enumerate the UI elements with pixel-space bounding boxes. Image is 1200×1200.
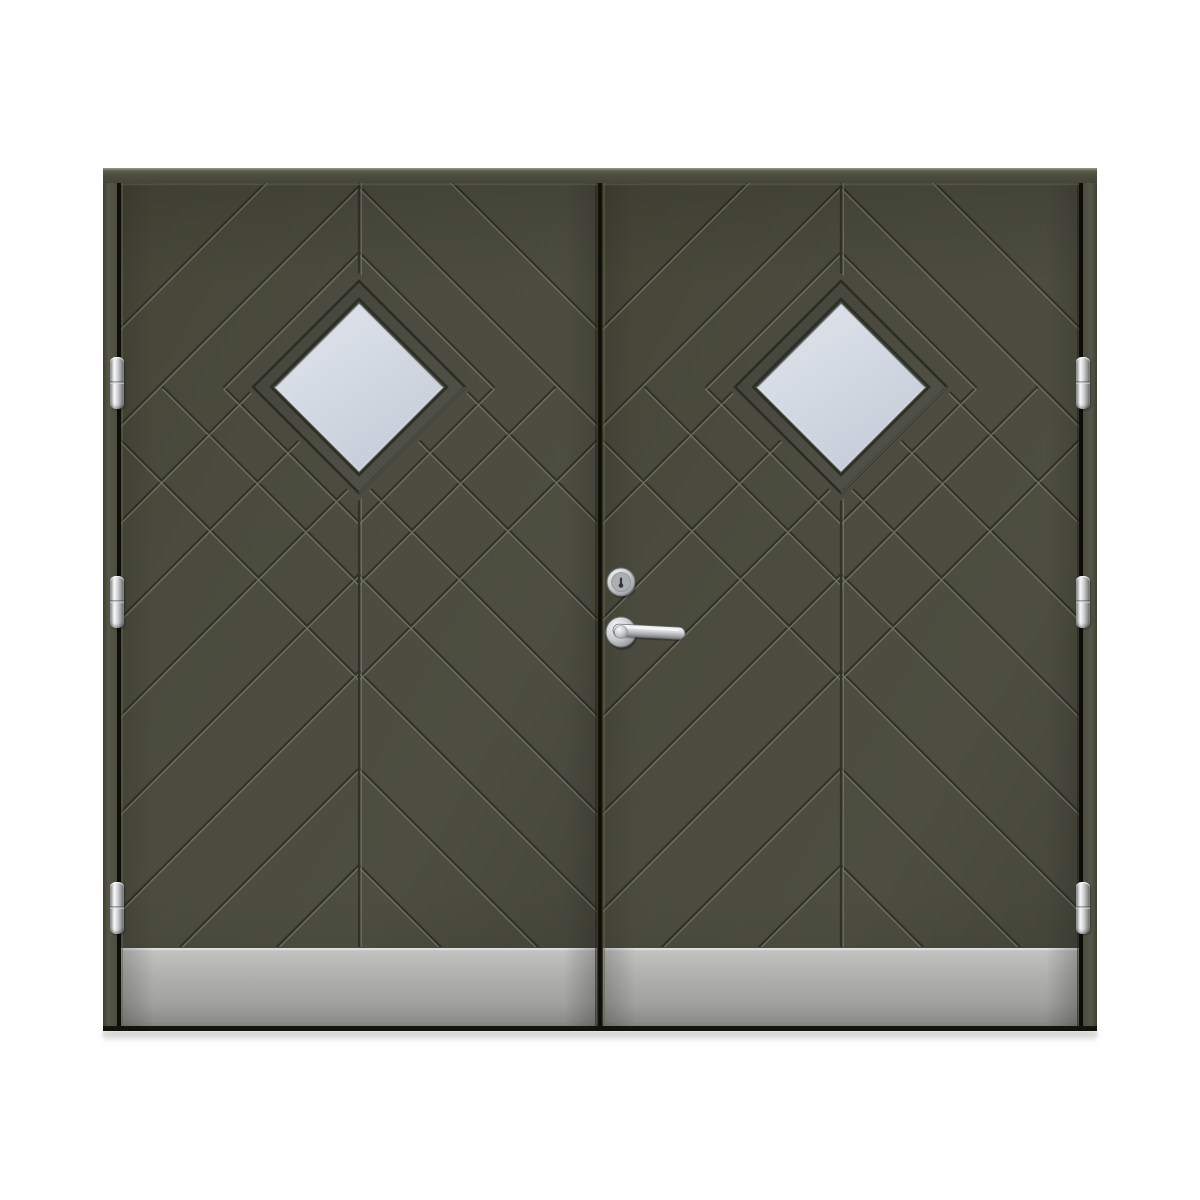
hinge-seam bbox=[110, 906, 124, 909]
lock-cylinder-icon bbox=[607, 568, 637, 599]
hinge-seam bbox=[1076, 381, 1090, 384]
hinge-seam bbox=[110, 381, 124, 384]
hinge-seam bbox=[1076, 600, 1090, 603]
hinge-seam bbox=[110, 600, 124, 603]
hinge-seam bbox=[1076, 906, 1090, 909]
door-handle-icon bbox=[606, 617, 685, 650]
product-photo-double-door bbox=[0, 0, 1200, 1200]
hinge-icon-right-2 bbox=[1076, 576, 1090, 628]
door-hardware-layer bbox=[0, 0, 1200, 1200]
hinge-icon-left-1 bbox=[110, 357, 124, 409]
hinge-icon-right-1 bbox=[1076, 357, 1090, 409]
hinge-icon-left-2 bbox=[110, 576, 124, 628]
hinge-icon-left-3 bbox=[110, 882, 124, 934]
hinge-icon-right-3 bbox=[1076, 882, 1090, 934]
